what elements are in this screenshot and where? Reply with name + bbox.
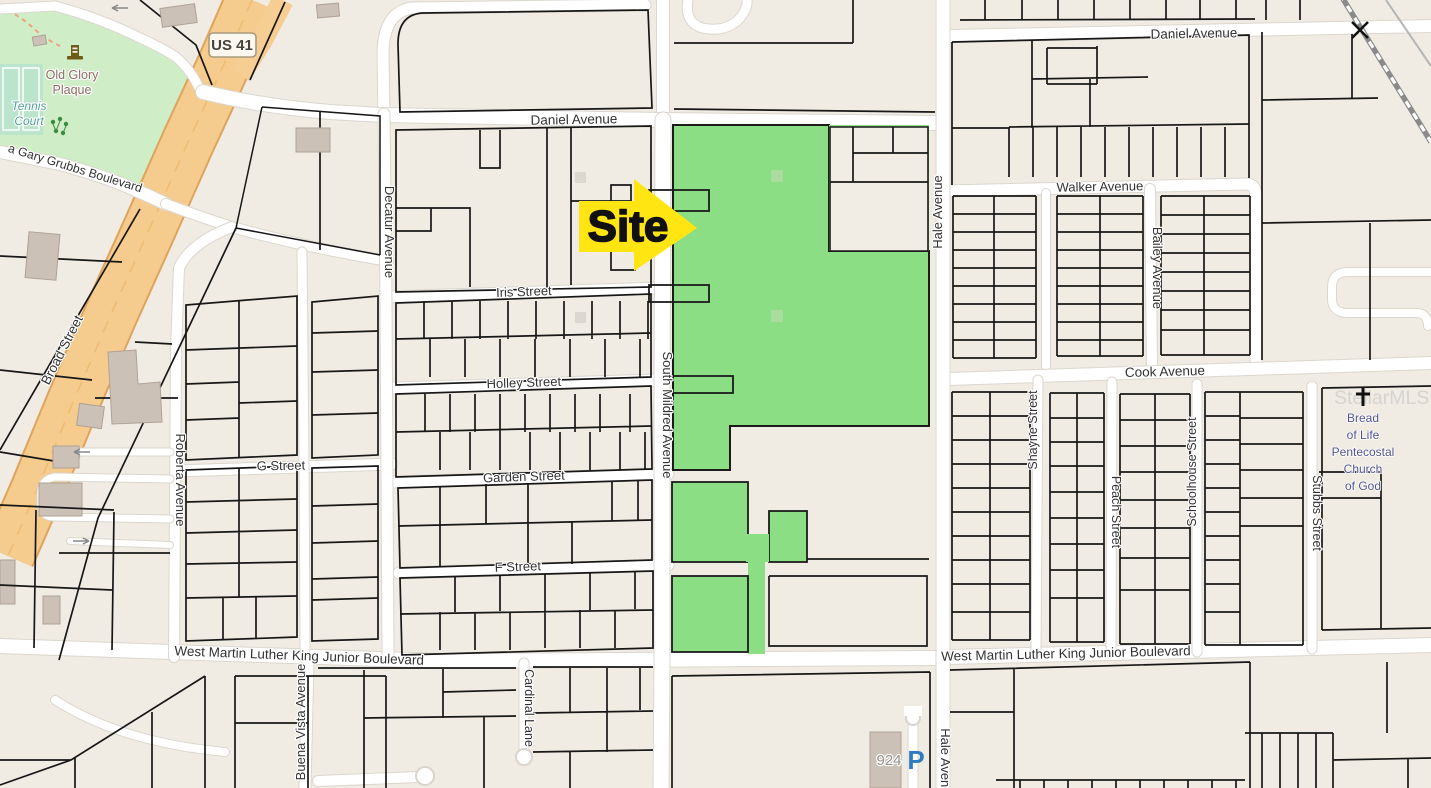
svg-text:F Street: F Street [494, 558, 541, 575]
svg-text:Bread: Bread [1347, 411, 1379, 425]
svg-text:Roberta Avenue: Roberta Avenue [173, 434, 188, 527]
svg-text:Old Glory: Old Glory [46, 68, 100, 82]
svg-text:South Mildred Avenue: South Mildred Avenue [660, 352, 675, 479]
svg-text:Garden Street: Garden Street [483, 468, 566, 486]
svg-text:Church: Church [1344, 462, 1383, 476]
svg-text:Plaque: Plaque [53, 83, 92, 97]
svg-text:Hale Avenue: Hale Avenue [938, 728, 953, 788]
svg-text:Bailey Avenue: Bailey Avenue [1150, 227, 1165, 309]
svg-text:Daniel Avenue: Daniel Avenue [530, 111, 617, 128]
svg-text:Schoolhouse Street: Schoolhouse Street [1185, 417, 1199, 527]
svg-text:US 41: US 41 [211, 37, 253, 54]
svg-text:Peach Street: Peach Street [1109, 476, 1123, 549]
svg-text:Cardinal Lane: Cardinal Lane [522, 669, 536, 747]
svg-text:P: P [907, 745, 924, 775]
svg-text:Holley Street: Holley Street [486, 374, 561, 392]
svg-text:Hale Avenue: Hale Avenue [930, 175, 945, 249]
svg-text:924: 924 [876, 752, 901, 769]
svg-text:Iris Street: Iris Street [496, 283, 553, 300]
svg-text:Daniel Avenue: Daniel Avenue [1150, 25, 1237, 42]
svg-text:Court: Court [14, 114, 44, 128]
svg-text:Buena Vista Avenue: Buena Vista Avenue [293, 664, 308, 781]
svg-text:of Life: of Life [1347, 428, 1380, 442]
svg-text:Walker Avenue: Walker Avenue [1056, 178, 1143, 195]
svg-text:Decatur Avenue: Decatur Avenue [382, 186, 397, 278]
svg-text:G Street: G Street [257, 458, 306, 474]
svg-text:StellarMLS: StellarMLS [1334, 387, 1429, 409]
svg-text:Site: Site [588, 202, 669, 251]
svg-text:Pentecostal: Pentecostal [1332, 445, 1395, 459]
svg-text:of God: of God [1345, 479, 1381, 493]
svg-text:Stubbs Street: Stubbs Street [1310, 475, 1324, 551]
svg-text:Cook Avenue: Cook Avenue [1125, 363, 1205, 380]
svg-text:Tennis: Tennis [12, 99, 47, 113]
svg-text:Shayne Street: Shayne Street [1026, 390, 1040, 470]
